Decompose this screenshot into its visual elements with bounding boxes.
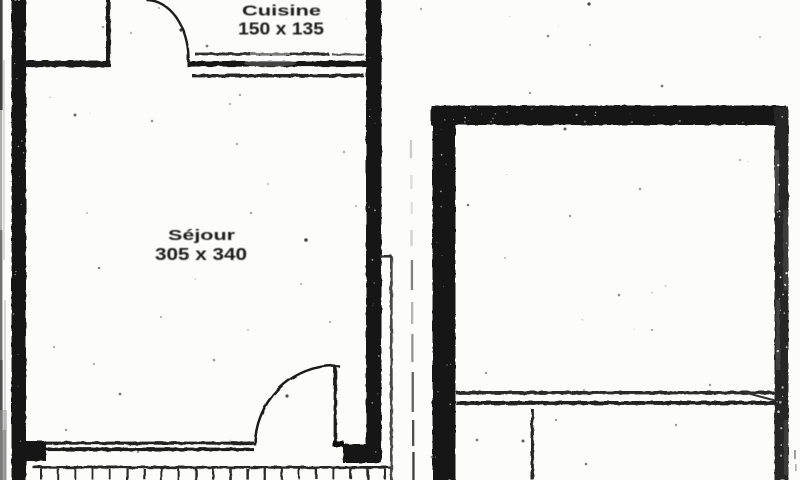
svg-text:Séjour: Séjour [168,227,235,244]
svg-text:305 x 340: 305 x 340 [155,244,247,264]
svg-text:150 x 135: 150 x 135 [238,19,324,39]
svg-text:Cuisine: Cuisine [242,3,321,20]
